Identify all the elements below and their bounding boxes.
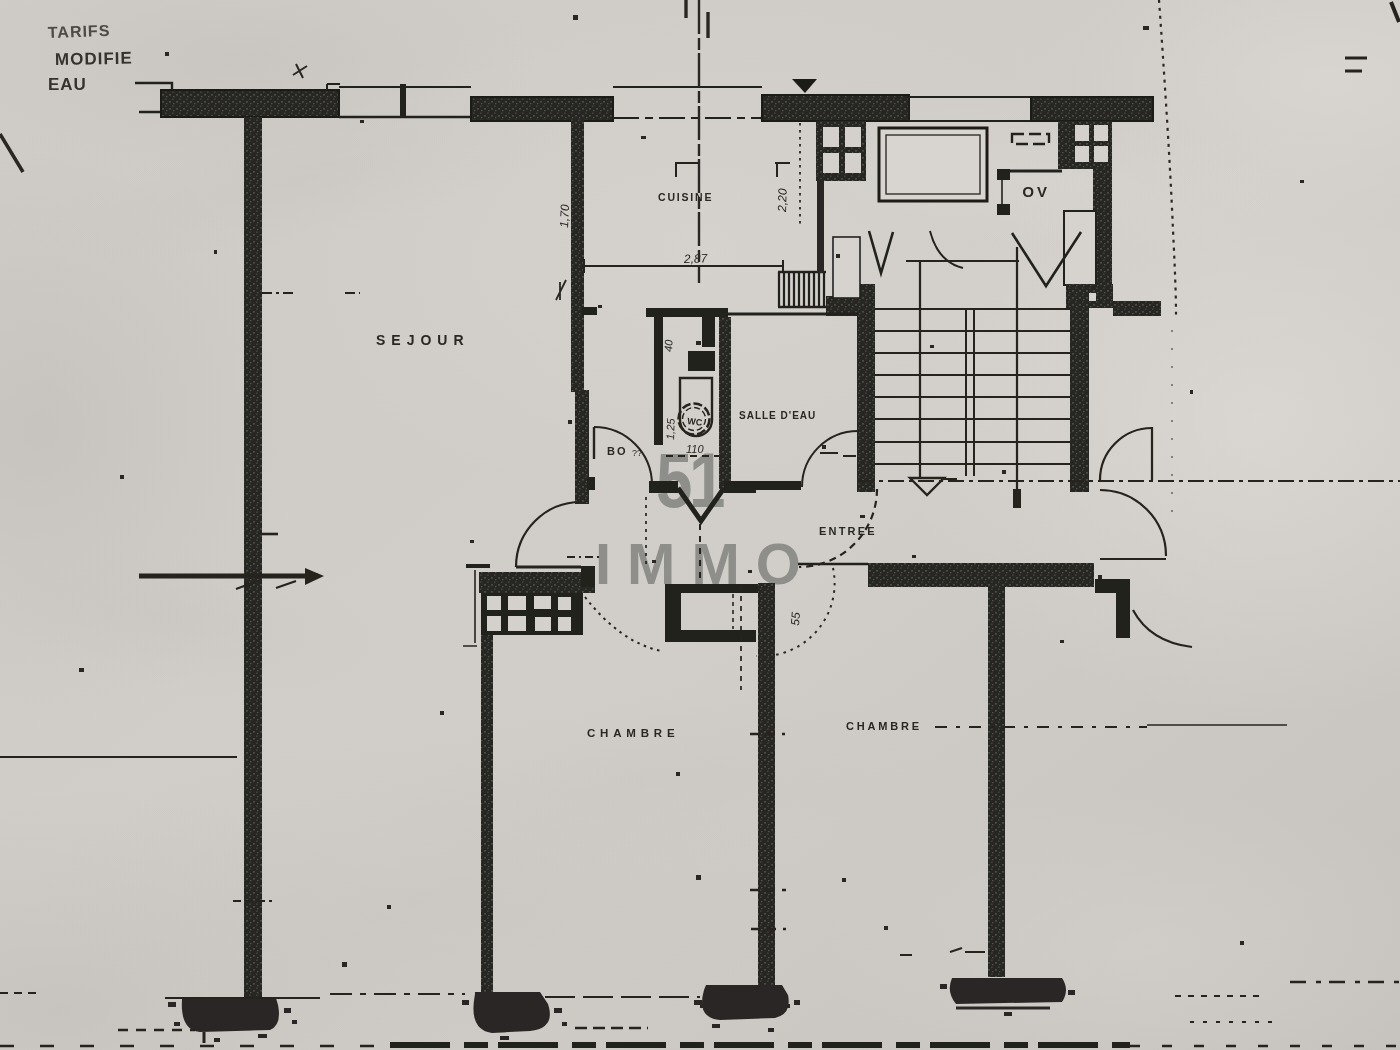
svg-text:SALLE D'EAU: SALLE D'EAU (739, 410, 816, 421)
svg-text:2,20: 2,20 (775, 188, 790, 213)
svg-text:2,87: 2,87 (683, 251, 709, 266)
svg-text:EAU: EAU (48, 75, 87, 94)
svg-text:55: 55 (788, 611, 803, 626)
svg-text:CHAMBRE: CHAMBRE (846, 720, 922, 732)
svg-text:SEJOUR: SEJOUR (376, 332, 470, 348)
svg-text:CHAMBRE: CHAMBRE (587, 727, 679, 739)
svg-text:1,25: 1,25 (664, 417, 677, 440)
svg-text:BO: BO (607, 445, 628, 457)
svg-text:MODIFIE: MODIFIE (55, 49, 133, 69)
svg-text:1,70: 1,70 (557, 204, 572, 228)
svg-text:40: 40 (662, 338, 675, 352)
svg-text:CUISINE: CUISINE (658, 191, 713, 203)
svg-text:TARIFS: TARIFS (48, 22, 111, 41)
svg-text:110: 110 (686, 443, 704, 455)
svg-text:WC: WC (687, 416, 703, 428)
svg-text:VO: VO (1019, 183, 1047, 200)
